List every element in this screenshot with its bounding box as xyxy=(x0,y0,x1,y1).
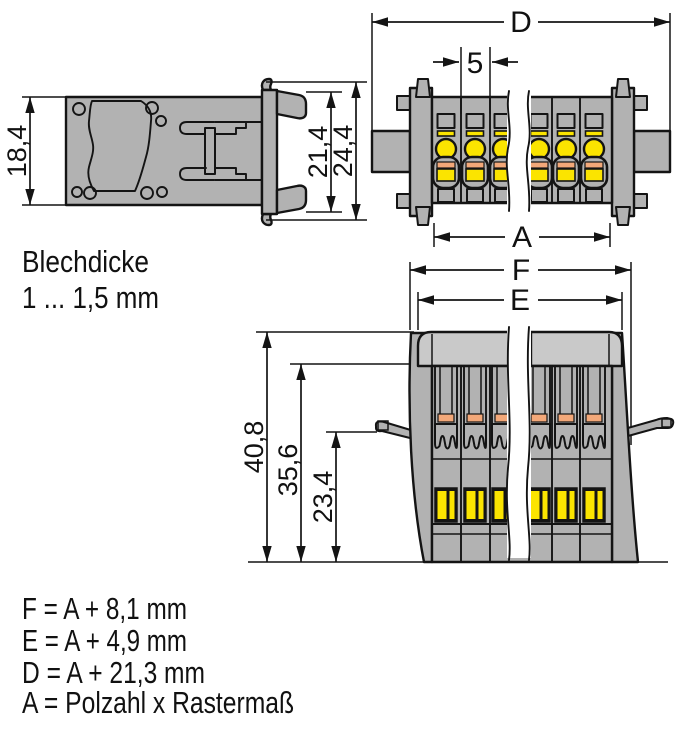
dim-label-plate-height: 18,4 xyxy=(2,125,32,178)
left-wall xyxy=(410,333,432,562)
dim-label-height-at-lever: 23,4 xyxy=(308,471,338,524)
datasheet-dimension-drawing: 18,4 21,4 xyxy=(0,0,697,744)
dim-label-width-e: E xyxy=(510,284,530,317)
left-ear xyxy=(372,131,410,172)
side-view: 18,4 21,4 xyxy=(2,79,367,225)
dim-label-height-below-cover: 35,6 xyxy=(273,444,303,497)
right-wall xyxy=(612,333,638,562)
formula-legend: F = A + 8,1 mm E = A + 4,9 mm D = A + 21… xyxy=(22,591,294,720)
dim-label-flange-outer: 24,4 xyxy=(328,125,358,178)
formula-f: F = A + 8,1 mm xyxy=(22,591,187,626)
top-view: D xyxy=(372,6,670,254)
material-note: Blechdicke 1 ... 1,5 mm xyxy=(22,244,159,315)
mounting-flange xyxy=(262,79,306,225)
dim-label-overall-width: D xyxy=(510,6,532,39)
material-note-line2: 1 ... 1,5 mm xyxy=(22,280,159,315)
material-note-line1: Blechdicke xyxy=(22,244,149,279)
technical-drawing-svg: 18,4 21,4 xyxy=(0,0,697,744)
dim-label-pitch: 5 xyxy=(467,47,484,80)
formula-a: A = Polzahl x Rastermaß xyxy=(22,685,294,720)
dim-label-overall-height: 40,8 xyxy=(239,421,269,474)
profile-view: F E 40,8 35,6 23,4 xyxy=(239,254,673,562)
formula-e: E = A + 4,9 mm xyxy=(22,623,187,658)
right-ear xyxy=(634,131,670,172)
dim-label-poles-width: A xyxy=(512,221,532,254)
dim-label-width-f: F xyxy=(512,254,530,287)
